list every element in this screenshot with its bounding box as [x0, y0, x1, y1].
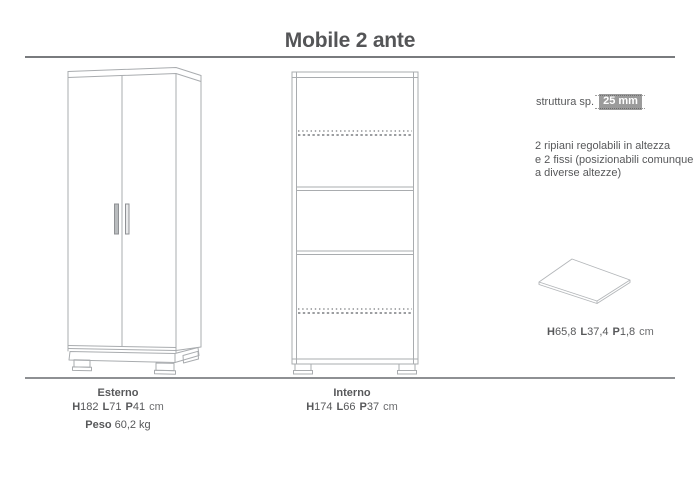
shelf-dim-l-value: 37,4 — [587, 326, 608, 338]
structure-spec-row: struttura sp. 25 mm — [536, 94, 642, 110]
exterior-dimensions-block: Esterno H182L71P41cm Peso60,2 kg — [38, 387, 198, 431]
exterior-block-title: Esterno — [38, 387, 198, 399]
shelves-note-line-2: e 2 fissi (posizionabili comunque — [535, 154, 693, 168]
int-dim-h-value: 174 — [314, 401, 332, 413]
product-spec-sheet: Mobile 2 ante — [0, 0, 700, 495]
interior-dimensions: H174L66P37cm — [272, 401, 432, 413]
shelf-dim-h-value: 65,8 — [555, 326, 576, 338]
ext-dim-l-value: 71 — [109, 401, 121, 413]
interior-shelves-drawing open-carcass-shelves-icon — [280, 64, 430, 379]
shelf-dim-p-label: P — [613, 326, 620, 338]
int-dim-l-value: 66 — [343, 401, 355, 413]
ext-dim-h-label: H — [72, 401, 80, 413]
int-dim-p-value: 37 — [367, 401, 379, 413]
interior-dimensions-block: Interno H174L66P37cm — [272, 387, 432, 413]
int-dim-p-label: P — [360, 401, 367, 413]
shelf-dim-h-label: H — [547, 326, 555, 338]
weight-label: Peso — [85, 419, 111, 431]
weight-row: Peso60,2 kg — [38, 419, 198, 431]
structure-thickness-badge: 25 mm — [599, 94, 642, 110]
shelves-note: 2 ripiani regolabili in altezza e 2 fiss… — [535, 140, 693, 181]
exterior-dimensions: H182L71P41cm — [38, 401, 198, 413]
shelf-dim-unit: cm — [639, 326, 654, 338]
ext-dim-p-value: 41 — [133, 401, 145, 413]
ext-dim-p-label: P — [126, 401, 133, 413]
shelf-dim-p-value: 1,8 — [620, 326, 635, 338]
shelves-note-line-1: 2 ripiani regolabili in altezza — [535, 140, 693, 154]
ext-dim-h-value: 182 — [80, 401, 98, 413]
adjustable-shelf-dashed-lines — [298, 131, 412, 313]
title-divider — [25, 56, 675, 58]
int-dim-unit: cm — [383, 401, 398, 413]
interior-block-title: Interno — [272, 387, 432, 399]
shelf-panel-drawing shelf-panel-icon — [530, 256, 645, 311]
structure-label: struttura sp. — [536, 96, 594, 108]
int-dim-h-label: H — [306, 401, 314, 413]
exterior-wardrobe-drawing wardrobe-two-doors-front-icon — [55, 64, 205, 379]
ext-dim-unit: cm — [149, 401, 164, 413]
bottom-divider — [25, 377, 675, 379]
page-title: Mobile 2 ante — [0, 29, 700, 53]
shelf-dimensions: H65,8L37,4P1,8cm — [547, 326, 654, 338]
shelves-note-line-3: a diverse altezze) — [535, 167, 693, 181]
weight-value: 60,2 kg — [115, 419, 151, 431]
